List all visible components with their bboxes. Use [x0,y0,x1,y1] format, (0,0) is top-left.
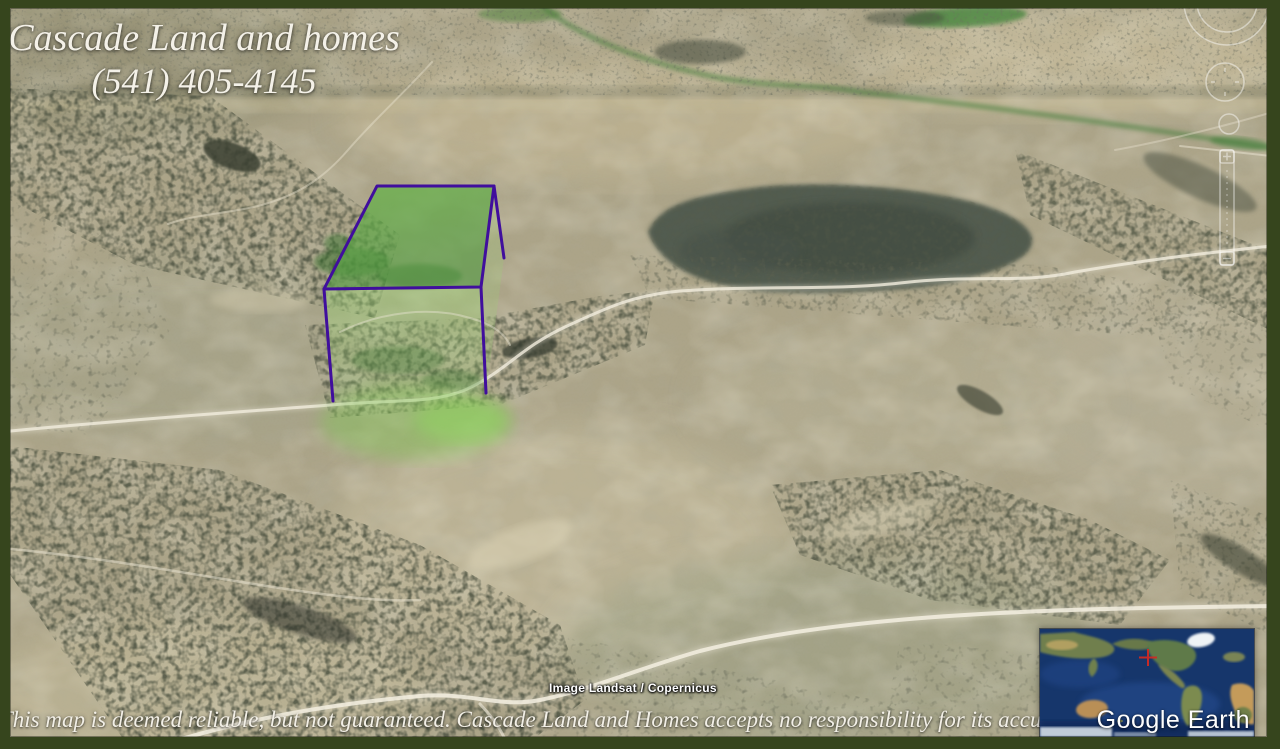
inset-desert [1046,640,1078,650]
company-name: Cascade Land and homes [8,16,400,60]
google-earth-window: Cascade Land and homes (541) 405-4145 Im… [0,0,1280,749]
imagery-attribution: Image Landsat / Copernicus [549,681,717,695]
branding-overlay: Cascade Land and homes (541) 405-4145 [8,16,400,102]
overview-inset-map[interactable]: Google Earth [1039,628,1255,738]
inset-ocean-swirl [1040,660,1120,688]
parcel-ground-glow-bright [414,398,510,442]
disclaimer-text: This map is deemed reliable, but not gua… [0,707,1086,733]
google-earth-logo: Google Earth [1097,706,1250,735]
map-viewport[interactable]: Cascade Land and homes (541) 405-4145 Im… [0,0,1280,749]
company-phone: (541) 405-4145 [8,60,400,102]
inset-europe [1223,652,1245,662]
